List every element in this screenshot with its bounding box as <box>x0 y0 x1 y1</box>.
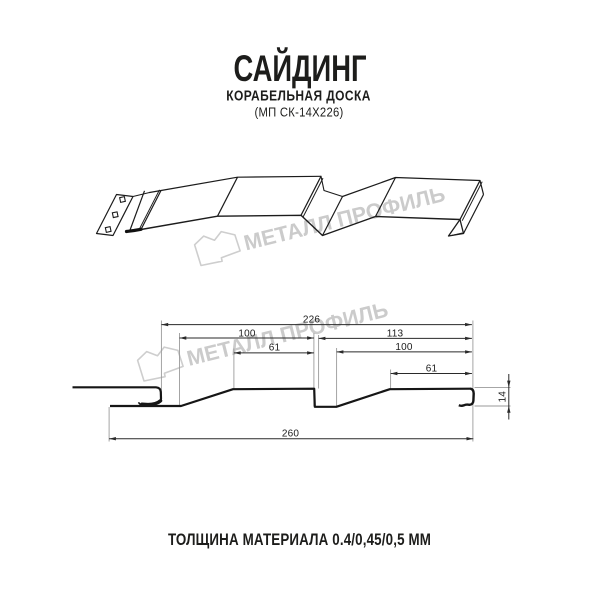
svg-text:100: 100 <box>238 328 256 339</box>
svg-text:ТОЛЩИНА МАТЕРИАЛА 0.4/0,45/0,5: ТОЛЩИНА МАТЕРИАЛА 0.4/0,45/0,5 ММ <box>168 531 431 550</box>
svg-text:226: 226 <box>303 314 321 325</box>
svg-text:14: 14 <box>498 391 509 403</box>
svg-text:61: 61 <box>269 342 281 353</box>
svg-text:113: 113 <box>387 328 404 339</box>
svg-text:260: 260 <box>282 429 300 440</box>
svg-text:100: 100 <box>395 342 413 353</box>
svg-text:САЙДИНГ: САЙДИНГ <box>234 46 367 89</box>
svg-text:КОРАБЕЛЬНАЯ ДОСКА: КОРАБЕЛЬНАЯ ДОСКА <box>226 87 371 104</box>
svg-text:(МП СК-14Х226): (МП СК-14Х226) <box>254 105 343 120</box>
svg-text:61: 61 <box>426 364 438 375</box>
